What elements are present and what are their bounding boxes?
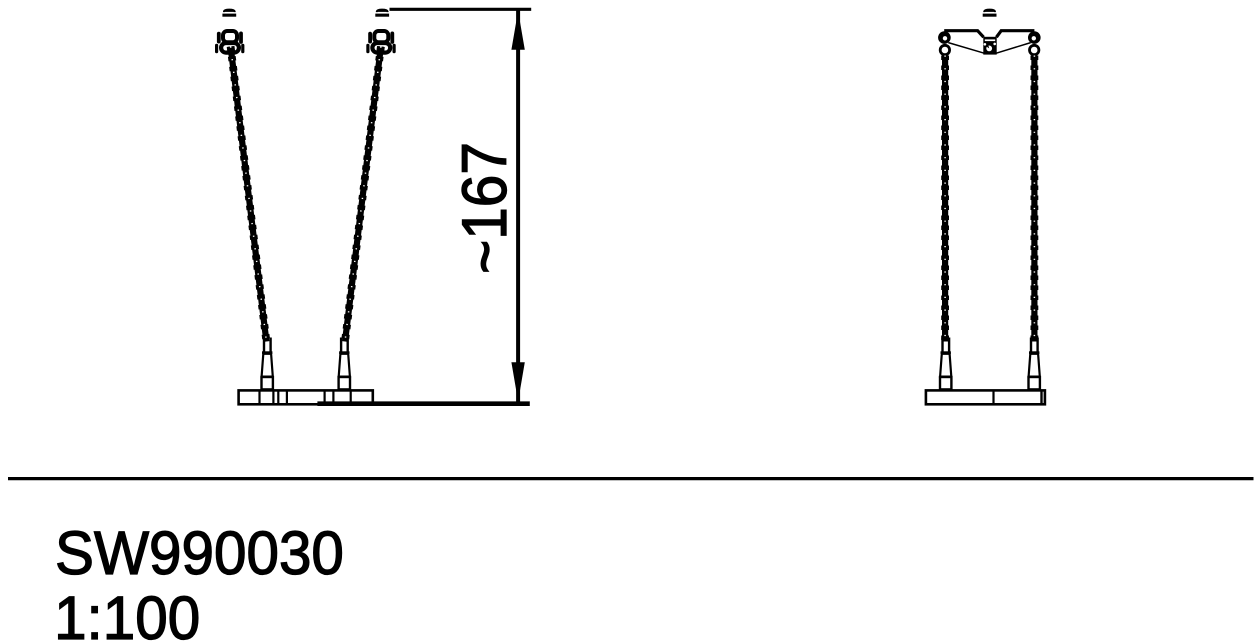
svg-text:1:100: 1:100: [54, 583, 200, 642]
svg-text:SW990030: SW990030: [55, 519, 344, 588]
svg-text:~167: ~167: [449, 142, 520, 274]
